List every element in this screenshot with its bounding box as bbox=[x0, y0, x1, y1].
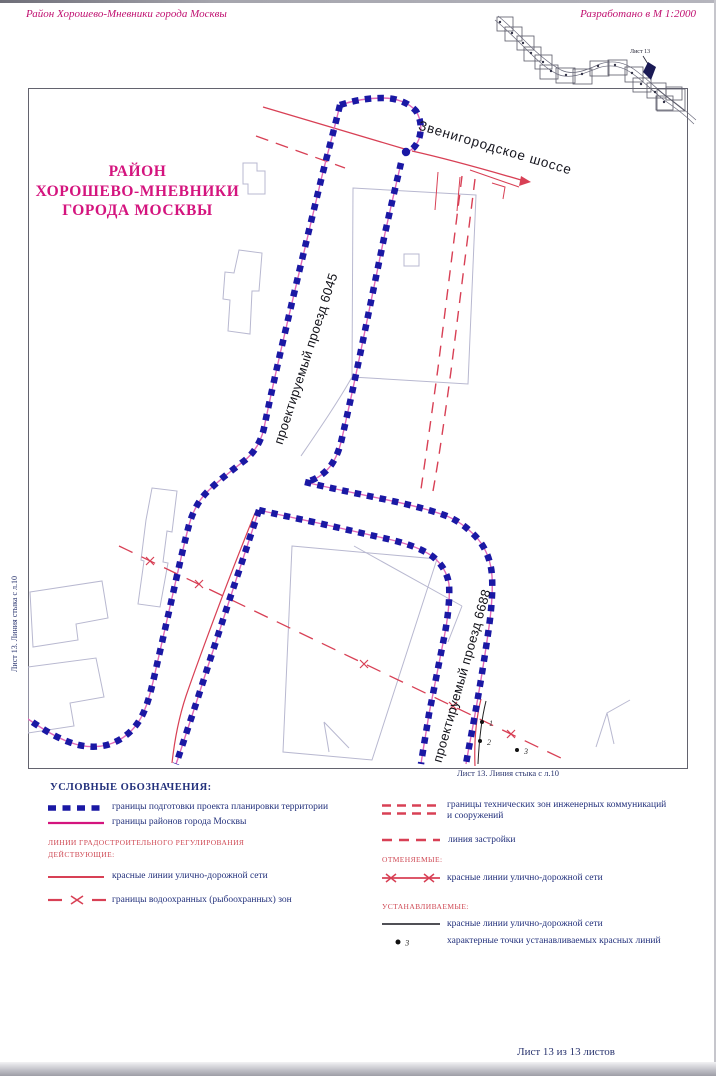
point-label-3: 3 bbox=[523, 747, 528, 756]
legend-established-heading: УСТАНАВЛИВАЕМЫЕ: bbox=[382, 902, 469, 911]
legend-point-number: 3 bbox=[404, 938, 409, 948]
tech-zone-line-b bbox=[433, 179, 475, 491]
legend-symbol-red-line bbox=[48, 874, 104, 880]
point-label-1: 1 bbox=[489, 719, 493, 728]
legend-symbol-red-dash-x bbox=[48, 894, 106, 906]
page-header-left: Район Хорошево-Мневники города Москвы bbox=[26, 8, 227, 20]
boundary-knot bbox=[402, 148, 410, 156]
legend-label-project-boundary: границы подготовки проекта планировки те… bbox=[112, 802, 328, 812]
sheet13-label: Лист 13 bbox=[630, 49, 650, 55]
point-label-2: 2 bbox=[487, 738, 491, 747]
legend-label-characteristic-points: характерные точки устанавливаемых красны… bbox=[447, 936, 661, 946]
legend-label-red-lines-established: красные линии улично-дорожной сети bbox=[447, 919, 603, 929]
legend-symbol-red-x-line bbox=[382, 872, 440, 884]
legend-label-red-lines-active: красные линии улично-дорожной сети bbox=[112, 871, 268, 881]
red-road-edges bbox=[435, 172, 505, 211]
legend-regulation-heading: ЛИНИИ ГРАДОСТРОИТЕЛЬНОГО РЕГУЛИРОВАНИЯ bbox=[48, 838, 244, 847]
map-title-line-2: ХОРОШЕВО-МНЕВНИКИ bbox=[35, 182, 240, 202]
scan-edge-top bbox=[0, 0, 716, 3]
legend-title: УСЛОВНЫЕ ОБОЗНАЧЕНИЯ: bbox=[50, 782, 212, 793]
characteristic-points: 1 2 3 bbox=[478, 719, 528, 756]
index-corner-square bbox=[657, 89, 685, 111]
road-label-zvenigorodskoe: Звенигородское шоссе bbox=[417, 118, 574, 178]
legend-symbol-numbered-point: 3 bbox=[393, 936, 417, 948]
map-title-line-1: РАЙОН bbox=[35, 162, 240, 182]
legend-symbol-red-double-dash bbox=[382, 802, 440, 818]
footer-sheet-number: Лист 13 из 13 листов bbox=[495, 1046, 615, 1058]
scanned-plan-page: { "page": { "header_left": "Район Хороше… bbox=[0, 0, 716, 1076]
established-red-line bbox=[478, 701, 486, 764]
legend-label-district-boundary: границы районов города Москвы bbox=[112, 817, 246, 827]
sheet13-marker bbox=[643, 62, 656, 80]
legend-cancelled-heading: ОТМЕНЯЕМЫЕ: bbox=[382, 855, 442, 864]
sheet13-leader-line bbox=[643, 56, 648, 64]
legend-active-heading: ДЕЙСТВУЮЩИЕ: bbox=[48, 850, 115, 859]
legend-label-tech-zones-1: границы технических зон инженерных комму… bbox=[447, 800, 666, 810]
red-line-shosse-west bbox=[263, 107, 408, 150]
legend-symbol-blue-dashed bbox=[48, 804, 104, 812]
map-title-line-3: ГОРОДА МОСКВЫ bbox=[35, 201, 240, 221]
scan-edge-bottom bbox=[0, 1062, 716, 1076]
legend-symbol-black-line bbox=[382, 921, 440, 927]
legend-label-water-zones: границы водоохранных (рыбоохранных) зон bbox=[112, 895, 292, 905]
legend-symbol-red-dash bbox=[382, 836, 440, 844]
legend-symbol-magenta-line bbox=[48, 820, 104, 826]
legend-label-building-line: линия застройки bbox=[448, 835, 515, 845]
legend-label-red-lines-cancelled: красные линии улично-дорожной сети bbox=[447, 873, 603, 883]
legend-label-tech-zones-2: и сооружений bbox=[447, 811, 503, 821]
building-outlines bbox=[28, 163, 630, 760]
edge-label-bottom: Лист 13. Линия стыка с л.10 bbox=[457, 768, 559, 778]
map-title: РАЙОН ХОРОШЕВО-МНЕВНИКИ ГОРОДА МОСКВЫ bbox=[35, 162, 240, 221]
edge-label-left: Лист 13. Линия стыка с л.10 bbox=[10, 560, 19, 672]
red-arrowhead bbox=[519, 176, 531, 186]
